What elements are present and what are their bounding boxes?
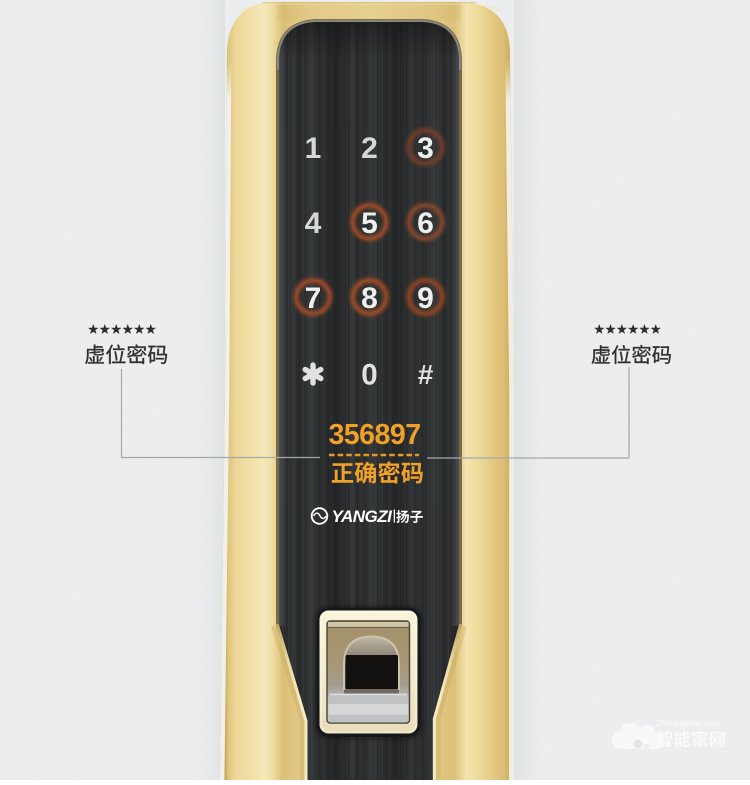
svg-text:#: # [418, 359, 434, 390]
svg-text:2: 2 [361, 132, 378, 165]
svg-text:4: 4 [305, 207, 322, 240]
svg-text:YANGZI: YANGZI [332, 507, 394, 526]
svg-text:0: 0 [361, 359, 377, 392]
svg-text:356897: 356897 [328, 419, 420, 451]
svg-text:Zhinengjiaw.com: Zhinengjiaw.com [655, 718, 719, 728]
svg-text:1: 1 [305, 132, 322, 165]
